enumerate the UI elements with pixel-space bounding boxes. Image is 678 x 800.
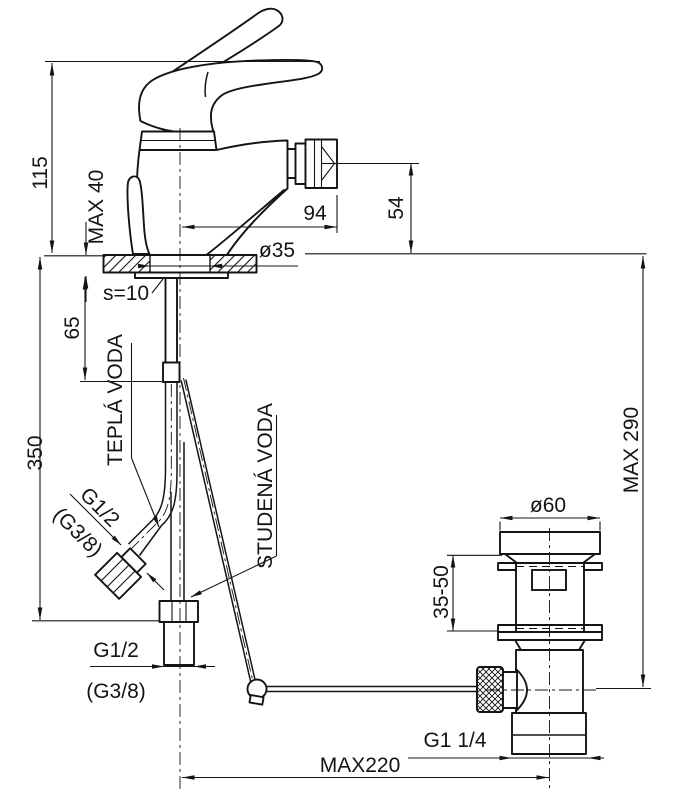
label-supply-thread: G1/2 (G3/8) <box>86 639 215 703</box>
dim-max290: MAX 290 <box>596 256 651 689</box>
hot-water-label: TEPLÁ VODA <box>104 334 127 466</box>
dim-s10: s=10 <box>103 279 163 305</box>
faucet-handle <box>139 60 322 133</box>
pipe-thread-end <box>164 622 194 665</box>
dim-115-label: 115 <box>29 156 52 189</box>
technical-drawing-canvas: 115 MAX 40 94 54 ø35 s=10 65 <box>0 0 678 800</box>
plate-hatch-left <box>104 255 151 273</box>
dim-35-50: 35-50 <box>430 555 502 631</box>
waste-clamp-nut <box>498 632 602 640</box>
dim-54-label: 54 <box>385 196 408 220</box>
spout-aerator <box>288 140 338 189</box>
waste-body <box>516 563 584 625</box>
waste-tailpiece <box>512 713 586 754</box>
pop-up-waste-assembly <box>498 532 602 754</box>
pop-up-rod-linkage <box>181 378 503 712</box>
bidet-mixer-installation-drawing: 115 MAX 40 94 54 ø35 s=10 65 <box>0 0 678 800</box>
rod-clamp-tab <box>249 695 263 705</box>
waste-flange <box>500 532 600 554</box>
cold-water-label: STUDENÁ VODA <box>254 403 277 569</box>
dim-54: 54 <box>305 163 647 254</box>
waste-thread-label: G1 1/4 <box>423 729 486 752</box>
knurled-knob <box>477 667 503 712</box>
supply-thread-label: G1/2 <box>93 639 139 662</box>
dim-max290-label: MAX 290 <box>620 407 643 493</box>
dim-94-label: 94 <box>303 202 327 225</box>
dim-dia60-label: ø60 <box>530 494 566 517</box>
dim-35-50-label: 35-50 <box>430 565 453 619</box>
label-cold-water: STUDENÁ VODA <box>191 403 277 597</box>
supply-thread-alt-label: (G3/8) <box>86 680 146 703</box>
base-washer <box>135 273 228 279</box>
plate-hatch-right <box>210 255 257 273</box>
dim-dia35-label: ø35 <box>259 239 295 262</box>
dim-s10-label: s=10 <box>103 282 149 305</box>
pipe-hex-nut <box>160 601 199 622</box>
dim-max40-label: MAX 40 <box>85 170 108 245</box>
dim-350-label: 350 <box>24 435 47 470</box>
label-hot-water: TEPLÁ VODA <box>104 334 159 527</box>
dim-max220-label: MAX220 <box>320 754 401 777</box>
dim-65-label: 65 <box>61 316 84 339</box>
dim-dia60: ø60 <box>500 494 600 531</box>
mounting-shank <box>166 278 178 363</box>
